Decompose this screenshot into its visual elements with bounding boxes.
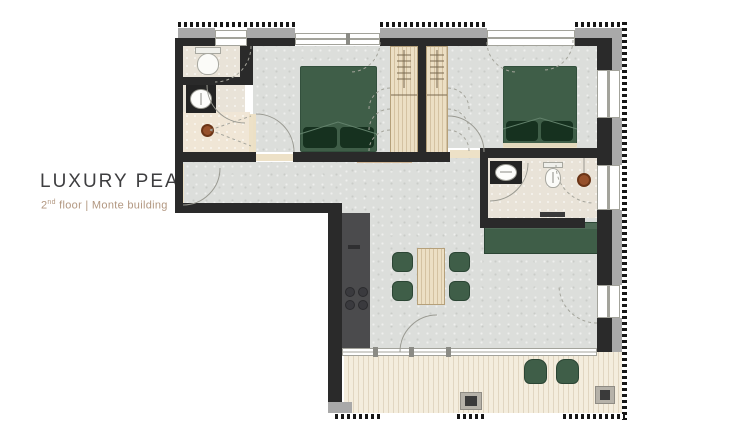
exterior-strip-top-a bbox=[178, 28, 215, 38]
bathroom1-door-threshold bbox=[249, 114, 256, 152]
window-bedroom1-mullion bbox=[346, 33, 350, 45]
wall-corridor-top-1 bbox=[183, 152, 256, 162]
hatch-bottom-2 bbox=[457, 414, 485, 419]
window-bathroom1 bbox=[215, 30, 247, 46]
window-bedroom1 bbox=[295, 33, 380, 45]
subtitle-text: floor | Monte building bbox=[56, 200, 168, 212]
shower1-floor bbox=[183, 112, 250, 152]
terrace-planter-1 bbox=[460, 392, 482, 410]
wardrobe-2 bbox=[426, 46, 448, 155]
terrace-deck bbox=[344, 352, 625, 413]
hatch-bottom-3 bbox=[563, 414, 625, 419]
terrace-chair-1 bbox=[524, 359, 547, 384]
wall-right-1 bbox=[597, 46, 612, 70]
dining-table bbox=[417, 248, 445, 305]
wall-bathroom2-left bbox=[480, 148, 488, 228]
page-subtitle: 2nd floor | Monte building bbox=[41, 199, 168, 212]
window-bathroom2 bbox=[597, 165, 620, 210]
cooktop-burner-4 bbox=[358, 300, 368, 310]
exterior-strip-right-2 bbox=[612, 118, 622, 165]
terrace-planter-2 bbox=[595, 386, 615, 404]
cooktop-burner-3 bbox=[345, 300, 355, 310]
vanity1-sink bbox=[190, 89, 212, 109]
wall-bathroom1-mid bbox=[183, 77, 253, 85]
glass-wall-mullion-2 bbox=[409, 347, 414, 357]
exterior-strip-top-b bbox=[247, 28, 295, 38]
wardrobe-1 bbox=[390, 46, 418, 155]
window-bedroom2 bbox=[487, 30, 575, 46]
wall-right-3 bbox=[597, 210, 612, 285]
toilet2-bowl bbox=[545, 168, 561, 188]
dining-chair-1 bbox=[392, 252, 413, 272]
exterior-strip-right-3 bbox=[612, 210, 622, 285]
window-bedroom2-east bbox=[597, 70, 620, 118]
glass-wall-terrace bbox=[342, 348, 597, 356]
window-living-door bbox=[597, 285, 620, 318]
wall-top-d bbox=[575, 38, 612, 46]
bedroom2-door-threshold bbox=[450, 150, 484, 158]
hatch-right bbox=[622, 22, 627, 420]
terrace-chair-2 bbox=[556, 359, 579, 384]
dining-chair-2 bbox=[449, 252, 470, 272]
glass-wall-mullion-1 bbox=[373, 347, 378, 357]
cooktop-burner-2 bbox=[358, 287, 368, 297]
wall-bathroom2-bottom bbox=[480, 218, 585, 228]
cooktop-burner-1 bbox=[345, 287, 355, 297]
bedroom1-door-threshold bbox=[256, 154, 293, 161]
wall-top-a bbox=[178, 38, 215, 46]
wall-left bbox=[175, 38, 183, 213]
wall-right-2 bbox=[597, 118, 612, 165]
bed2-pillow-right bbox=[541, 121, 573, 141]
wall-right-4 bbox=[597, 318, 612, 352]
wall-wardrobe-divider bbox=[418, 46, 426, 155]
bed2-pillow-left bbox=[506, 121, 538, 141]
bed1-pillow-left bbox=[303, 127, 337, 148]
wall-corridor-bottom bbox=[175, 203, 342, 213]
shower2-head bbox=[577, 173, 591, 187]
hatch-top-3 bbox=[575, 22, 628, 27]
page-title: LUXURY PEAK bbox=[40, 171, 194, 193]
dining-chair-4 bbox=[449, 281, 470, 301]
bed1-pillow-right bbox=[340, 127, 374, 148]
floor-ordinal: nd bbox=[47, 199, 55, 206]
vanity2-sink bbox=[495, 164, 517, 181]
hatch-top-1 bbox=[178, 22, 295, 27]
wall-corridor-top-2 bbox=[293, 152, 450, 162]
hatch-top-2 bbox=[380, 22, 487, 27]
shower2-partition bbox=[540, 212, 565, 217]
exterior-strip-right-4 bbox=[612, 318, 622, 352]
kitchen-counter bbox=[342, 213, 370, 349]
wall-top-b bbox=[247, 38, 295, 46]
shower1-drain bbox=[201, 124, 214, 137]
wall-living-left bbox=[328, 203, 342, 402]
exterior-strip-top-c bbox=[380, 28, 487, 38]
hatch-bottom-1 bbox=[335, 414, 380, 419]
exterior-strip-right-1 bbox=[612, 28, 622, 70]
floorplan-page: LUXURY PEAK ▶ 2nd floor | Monte building bbox=[0, 0, 754, 435]
wall-top-c bbox=[380, 38, 487, 46]
toilet1-bowl bbox=[197, 53, 219, 75]
kitchen-sink bbox=[348, 245, 360, 249]
wall-bathroom2-top bbox=[480, 148, 612, 158]
glass-wall-mullion-3 bbox=[446, 347, 451, 357]
wall-living-cap bbox=[328, 402, 352, 413]
dining-chair-3 bbox=[392, 281, 413, 301]
